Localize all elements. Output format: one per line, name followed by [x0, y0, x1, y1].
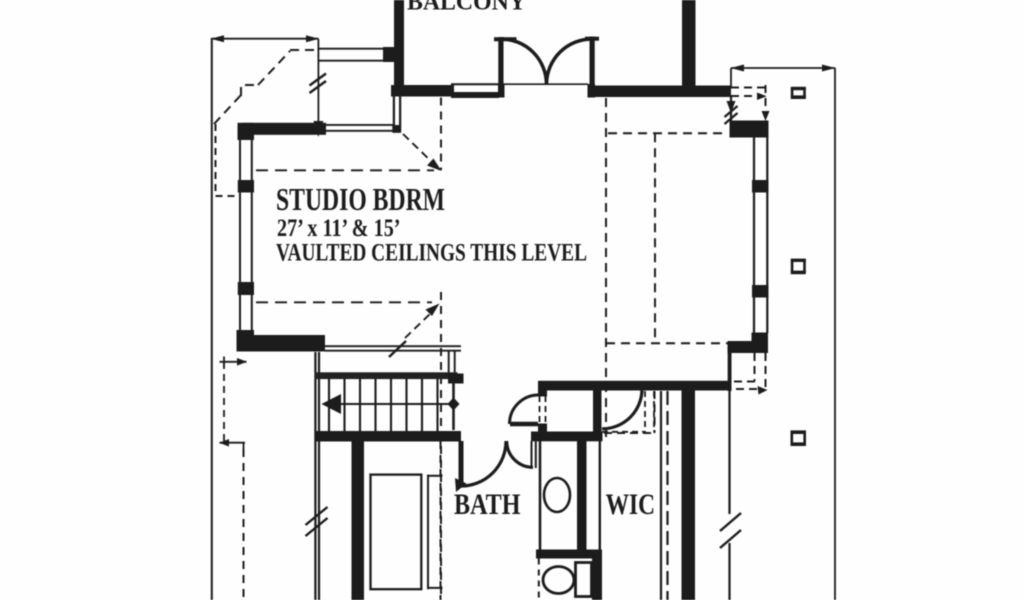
svg-text:STUDIO BDRM: STUDIO BDRM: [276, 181, 445, 217]
svg-text:BALCONY: BALCONY: [407, 0, 526, 16]
svg-text:WIC: WIC: [606, 488, 656, 521]
svg-text:BATH: BATH: [454, 489, 521, 521]
svg-text:27’ x 11’ & 15’: 27’ x 11’ & 15’: [277, 215, 401, 242]
svg-text:VAULTED CEILINGS THIS LEVEL: VAULTED CEILINGS THIS LEVEL: [276, 239, 587, 266]
